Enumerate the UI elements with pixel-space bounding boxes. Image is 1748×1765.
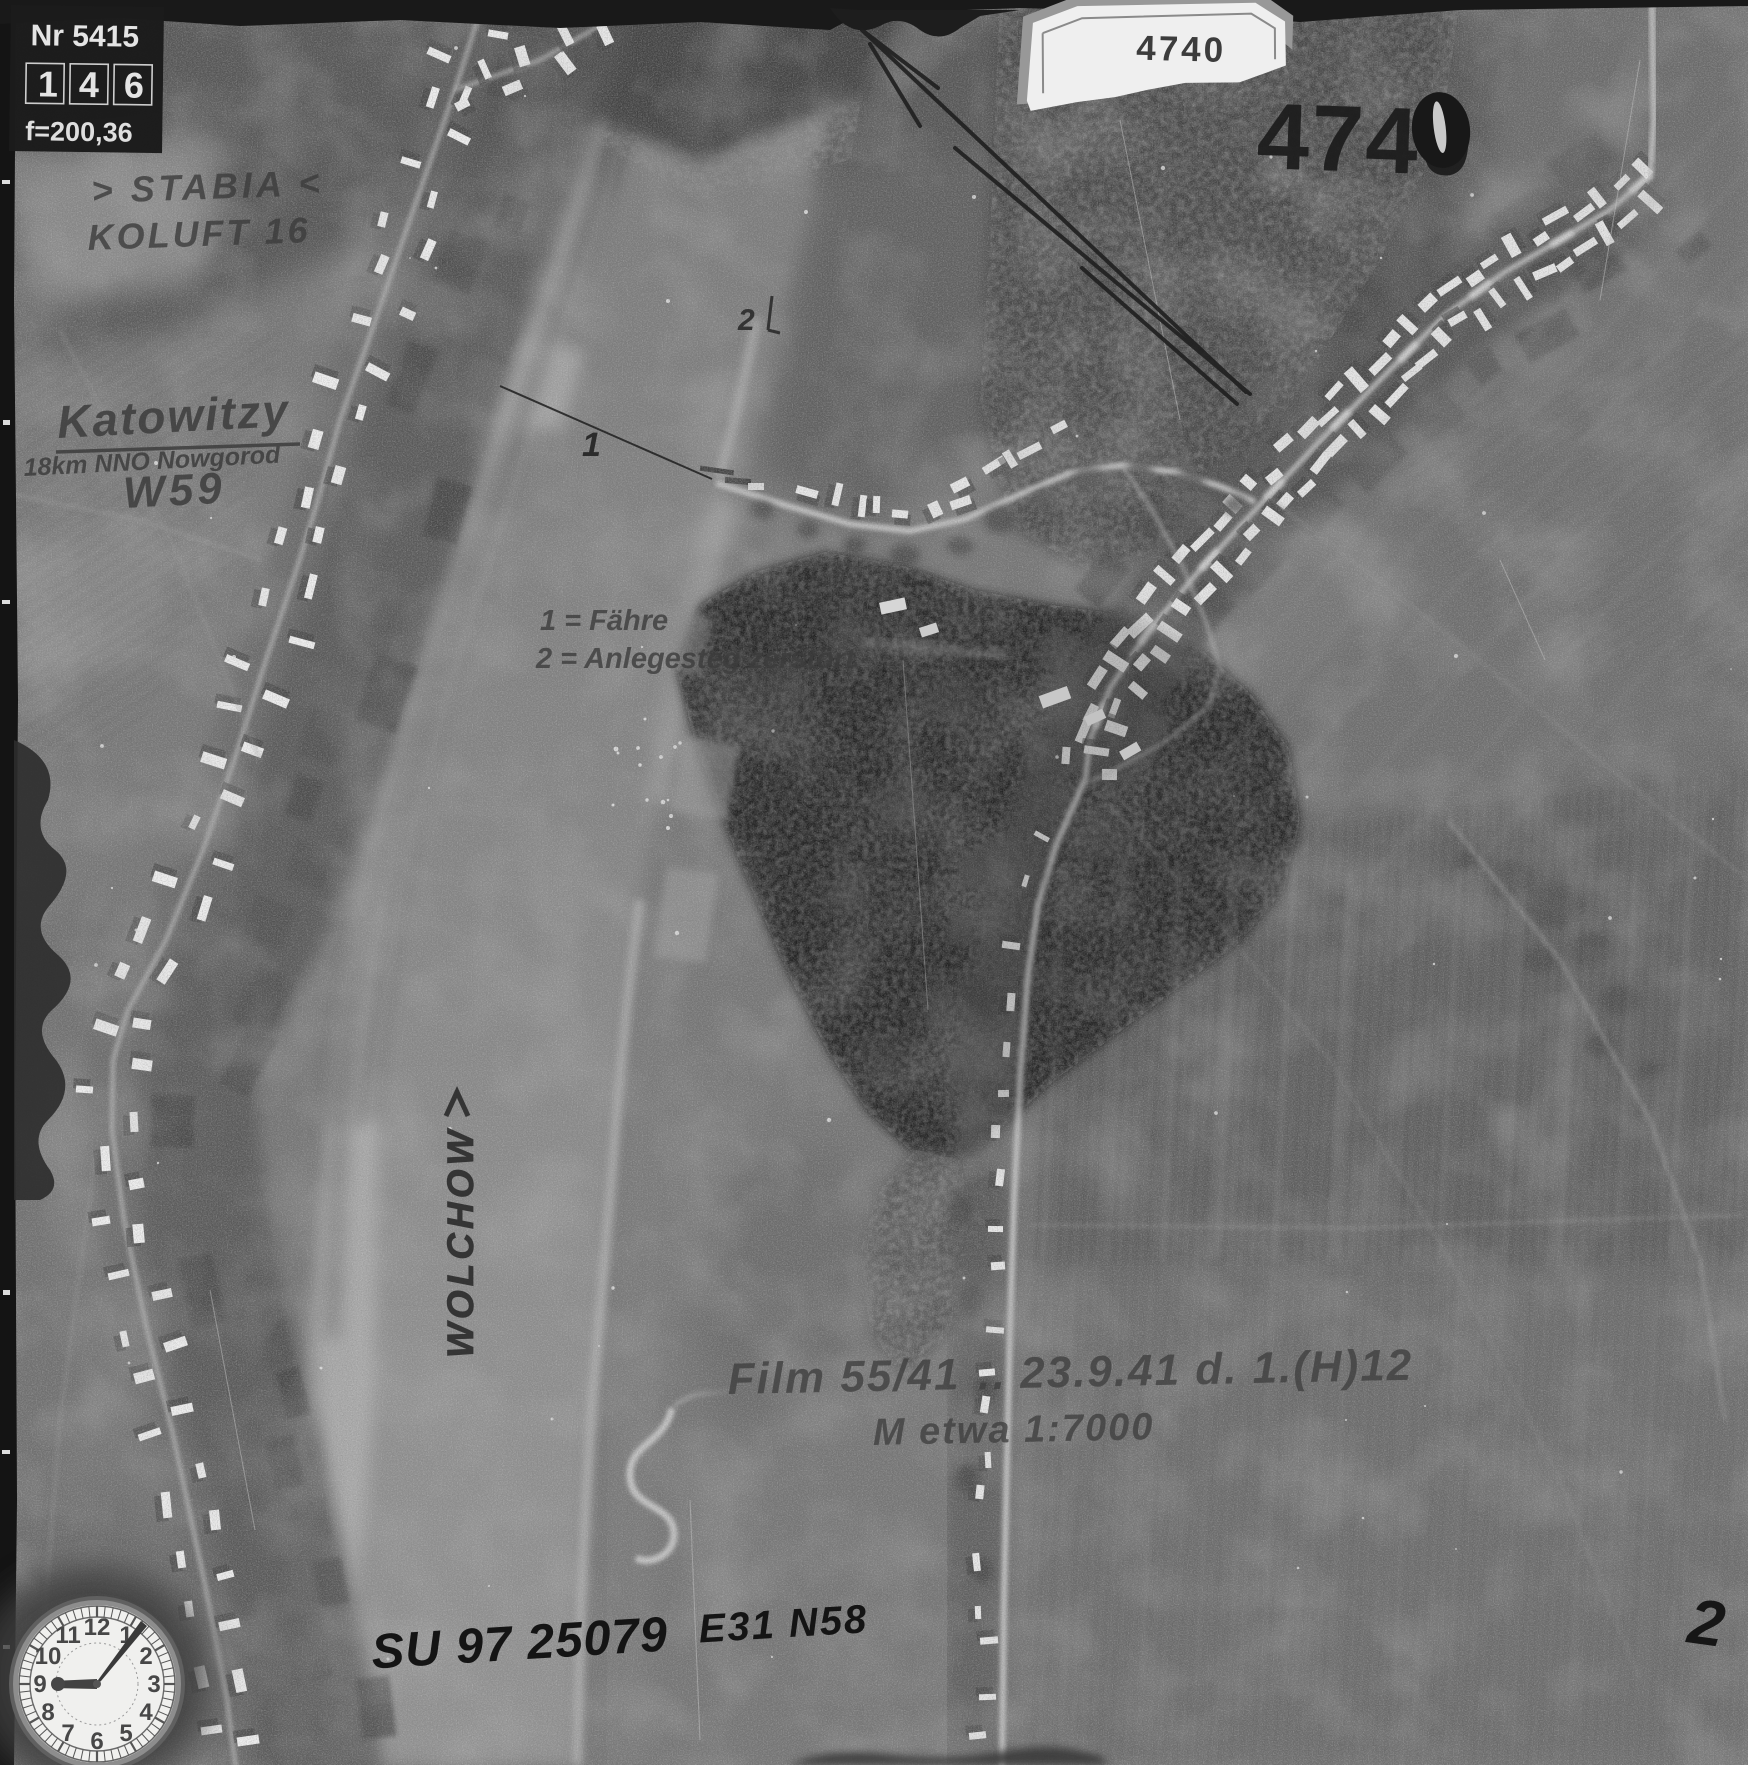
svg-text:4: 4 [139,1699,153,1726]
svg-text:2 = Anlegesteg zerstört: 2 = Anlegesteg zerstört [535,643,856,675]
svg-text:> STABIA <: > STABIA < [91,162,324,211]
svg-text:1: 1 [582,426,601,464]
svg-text:f=200,36: f=200,36 [25,116,133,147]
svg-text:6: 6 [90,1728,103,1755]
svg-text:8: 8 [41,1699,54,1726]
svg-text:5: 5 [119,1720,132,1747]
svg-text:4740: 4740 [1136,29,1227,70]
svg-text:1: 1 [38,63,59,104]
svg-text:4: 4 [79,64,100,105]
svg-text:3: 3 [147,1671,160,1698]
svg-text:9: 9 [33,1671,46,1698]
svg-text:6: 6 [124,65,145,106]
svg-text:2: 2 [139,1643,152,1670]
svg-text:Nr 5415: Nr 5415 [30,19,139,54]
svg-text:12: 12 [84,1614,111,1641]
svg-text:7: 7 [61,1720,74,1747]
svg-text:11: 11 [55,1622,80,1649]
svg-text:KOLUFT 16: KOLUFT 16 [87,209,311,258]
svg-text:WOLCHOW: WOLCHOW [440,1127,481,1358]
svg-text:2: 2 [737,304,755,337]
svg-text:W59: W59 [122,464,227,518]
svg-text:1 = Fähre: 1 = Fähre [540,605,668,637]
svg-text:M etwa 1:7000: M etwa 1:7000 [872,1406,1154,1454]
